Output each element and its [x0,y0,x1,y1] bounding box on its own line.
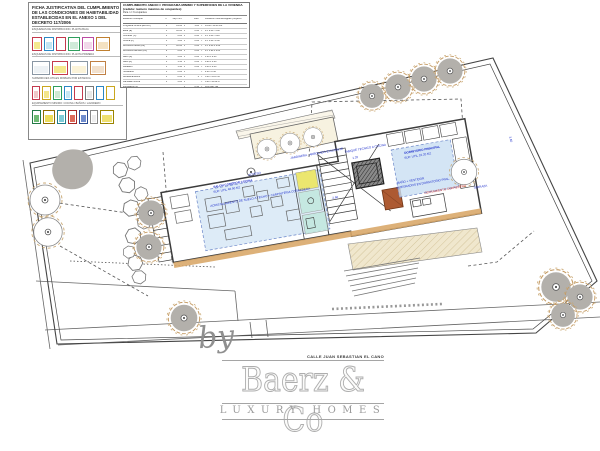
legend-section: SUPERFICIES UTILES MINIMAS POR ESTANCIA [32,77,123,101]
mini-floorplan-icon [42,86,51,100]
shaft-hatched [352,158,384,188]
watermark-tagline: LUXURY HOMES [218,405,388,416]
mini-floorplan-icon [56,37,66,51]
spec-table-panel: CUMPLIMIENTO ANEXO I: PROGRAMA MINIMO Y … [120,2,250,88]
legend-sections: ESQUEMAS DE DISTRIBUCION. PLANTA BAJAESQ… [32,28,123,125]
mini-floorplan-icon [90,61,106,75]
mini-floorplan-icon [32,110,41,124]
watermark-by-script: by [197,319,236,356]
tree-canopy [52,149,93,189]
legend-mini-plans [32,57,123,76]
spec-col-header: sup. min. [170,18,182,21]
spec-col-header: estancia / concepto [123,18,163,21]
mini-floorplan-icon [74,86,83,100]
column-markers [247,168,255,176]
habitability-legend-panel: FICHA JUSTIFICATIVA DEL CUMPLIMIENTO DE … [28,2,127,140]
watermark-brand-text: Baerz & Co [225,360,382,440]
legend-section: ESQUEMAS DE DISTRIBUCION. PLANTA PRIMERA [32,53,123,77]
legend-section: EQUIPAMIENTO MINIMO: COCINA / BAÑOS / LA… [32,102,123,126]
tree-icon [28,183,62,217]
mini-floorplan-icon [100,110,114,124]
bedroom-highlight [391,140,458,198]
spec-col-header: n° [163,18,170,21]
kitchen-cell-highlight [296,169,319,190]
mini-floorplan-icon [96,86,104,100]
spec-col-header: condicion minima exigida / proyecto [204,18,247,21]
mini-floorplan-icon [82,37,94,51]
mini-floorplan-icon [79,110,88,124]
legend-section: ESQUEMAS DE DISTRIBUCION. PLANTA BAJA [32,28,123,52]
legend-mini-plans [32,33,123,52]
watermark-street-text: CALLE JUAN SEBASTIAN EL CANO [302,354,384,359]
mini-floorplan-icon [32,86,40,100]
watermark-rule-mid [222,403,384,404]
mini-floorplan-icon [64,86,72,100]
mini-floorplan-icon [90,110,98,124]
tree-icon [32,216,64,248]
watermark: by CALLE JUAN SEBASTIAN EL CANO Baerz & … [190,320,410,430]
legend-title: FICHA JUSTIFICATIVA DEL CUMPLIMIENTO DE … [32,5,123,27]
mini-floorplan-icon [85,86,94,100]
spec-table-rows: Programa minimo (E+C+K)114.00x1.00=14.00… [123,24,247,88]
mini-floorplan-icon [32,37,42,51]
spec-table-title: CUMPLIMIENTO ANEXO I: PROGRAMA MINIMO Y … [123,4,247,11]
legend-mini-plans [32,82,123,101]
mini-floorplan-icon [32,61,50,75]
legend-mini-plans [32,106,123,125]
spec-col-header: coef. [187,18,199,21]
mini-floorplan-icon [106,86,115,100]
mini-floorplan-icon [68,37,80,51]
mini-floorplan-icon [68,110,77,124]
tree-icon [357,81,388,112]
spec-table-header: estancia / concepton°sup. min.coef.condi… [123,16,247,24]
laundry-cell-highlight [302,211,328,234]
floor-plan-page: JARDINERA - ARBOLADO EXISTENTEACCESOSALO… [0,0,600,451]
mini-floorplan-icon [53,86,62,100]
watermark-rule-bottom [222,419,384,420]
mini-floorplan-icon [96,37,110,51]
tree-icon [434,55,466,87]
mini-floorplan-icon [70,61,88,75]
mini-floorplan-icon [52,61,68,75]
mini-floorplan-icon [57,110,66,124]
spec-table-row: Iluminacion (1)x0.10=10% sup. util [123,85,247,88]
mini-floorplan-icon [44,37,54,51]
mini-floorplan-icon [43,110,55,124]
bath-cell-highlight [298,189,322,213]
